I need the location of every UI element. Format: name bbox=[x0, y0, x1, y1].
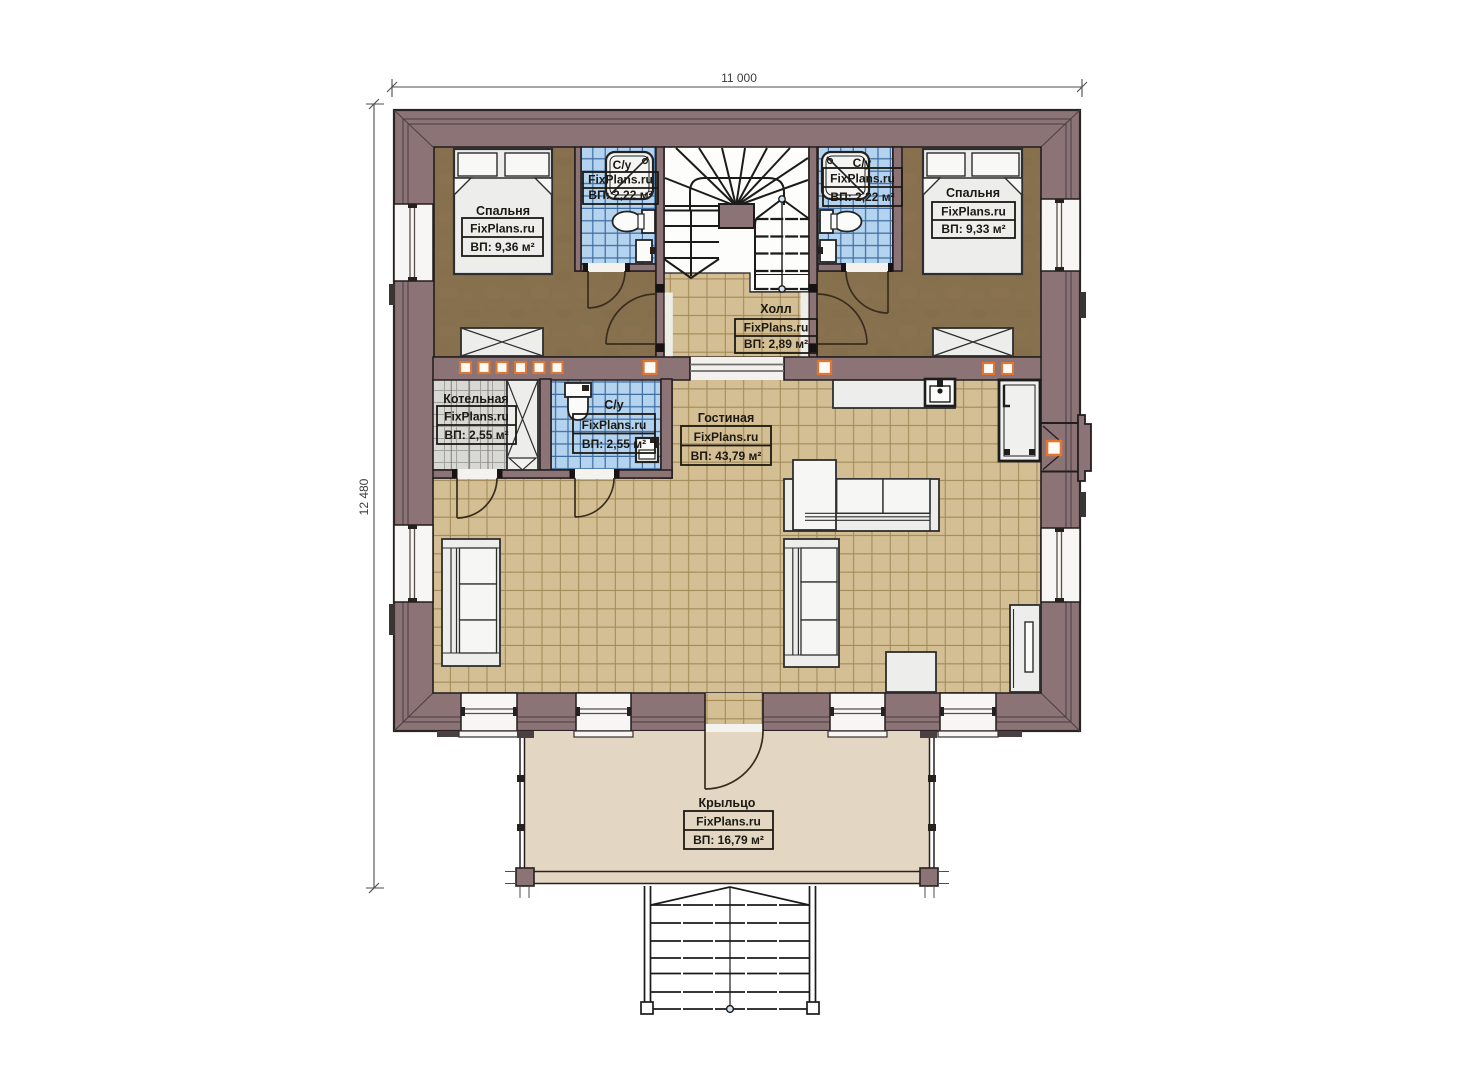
svg-text:ВП: 2,22 м²: ВП: 2,22 м² bbox=[830, 190, 894, 204]
svg-text:Спальня: Спальня bbox=[946, 186, 1000, 200]
svg-text:ВП: 9,33 м²: ВП: 9,33 м² bbox=[941, 222, 1005, 236]
svg-text:12 480: 12 480 bbox=[357, 478, 371, 515]
svg-text:FixPlans.ru: FixPlans.ru bbox=[744, 321, 809, 335]
svg-text:FixPlans.ru: FixPlans.ru bbox=[696, 815, 761, 829]
svg-text:ВП: 2,22 м²: ВП: 2,22 м² bbox=[588, 188, 652, 202]
svg-text:С/у: С/у bbox=[613, 158, 632, 172]
svg-text:FixPlans.ru: FixPlans.ru bbox=[941, 205, 1006, 219]
svg-text:ВП: 9,36 м²: ВП: 9,36 м² bbox=[470, 240, 534, 254]
svg-text:FixPlans.ru: FixPlans.ru bbox=[470, 222, 535, 236]
svg-text:FixPlans.ru: FixPlans.ru bbox=[694, 430, 759, 444]
svg-text:ВП: 16,79 м²: ВП: 16,79 м² bbox=[693, 833, 764, 847]
svg-text:FixPlans.ru: FixPlans.ru bbox=[582, 418, 647, 432]
svg-text:FixPlans.ru: FixPlans.ru bbox=[588, 173, 653, 187]
svg-text:Гостиная: Гостиная bbox=[698, 411, 755, 425]
svg-text:Крыльцо: Крыльцо bbox=[699, 796, 756, 810]
svg-text:FixPlans.ru: FixPlans.ru bbox=[444, 410, 509, 424]
svg-text:ВП: 2,55 м²: ВП: 2,55 м² bbox=[444, 428, 508, 442]
svg-text:11 000: 11 000 bbox=[721, 71, 757, 85]
svg-text:ВП: 43,79 м²: ВП: 43,79 м² bbox=[691, 449, 762, 463]
svg-text:ВП: 2,89 м²: ВП: 2,89 м² bbox=[744, 337, 808, 351]
svg-text:Спальня: Спальня bbox=[476, 204, 530, 218]
svg-text:Котельная: Котельная bbox=[443, 392, 508, 406]
svg-text:FixPlans.ru: FixPlans.ru bbox=[830, 172, 895, 186]
svg-text:ВП: 2,55 м²: ВП: 2,55 м² bbox=[582, 437, 646, 451]
svg-text:Холл: Холл bbox=[760, 302, 791, 316]
svg-text:С/у: С/у bbox=[604, 398, 624, 412]
